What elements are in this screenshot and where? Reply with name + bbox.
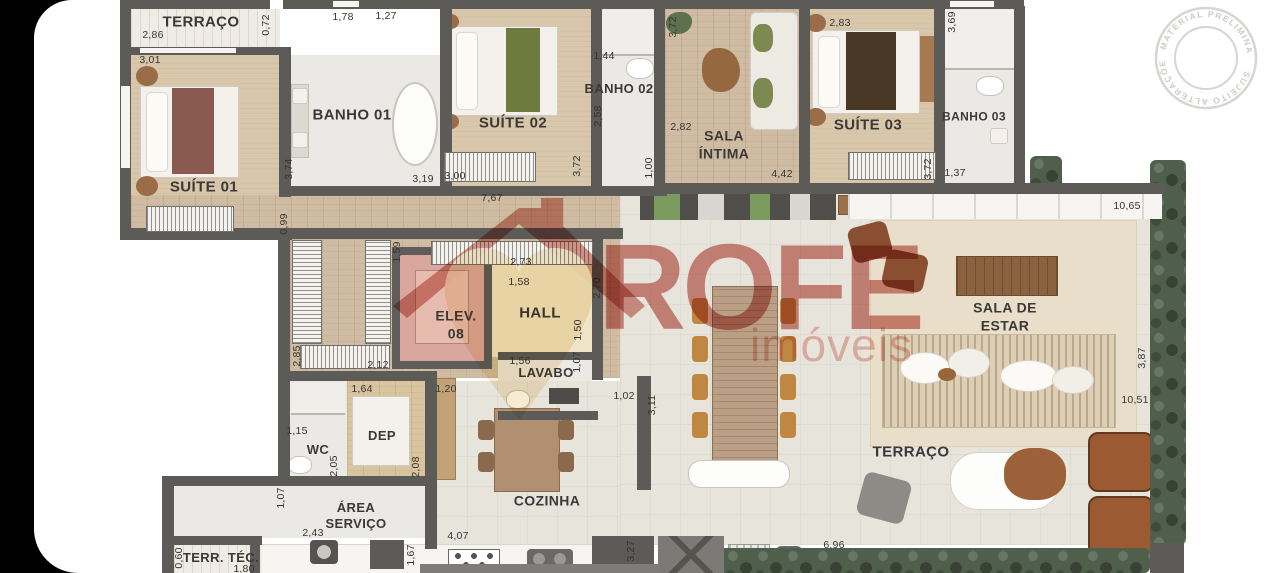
dim-label-20: 0,99 <box>278 213 290 234</box>
dim-label-37: 2,43 <box>302 527 323 539</box>
dim-label-7: 3,69 <box>946 11 958 32</box>
dim-label-43: 4,07 <box>447 530 468 542</box>
dim-label-30: 2,12 <box>367 359 388 371</box>
dim-label-1: 3,01 <box>139 54 160 66</box>
dim-label-10: 3,00 <box>444 170 465 182</box>
dim-label-42: 1,67 <box>405 544 417 565</box>
dim-label-12: 2,82 <box>670 121 691 133</box>
dim-label-46: 0,60 <box>173 547 185 568</box>
dim-label-41: 10,51 <box>1121 394 1148 406</box>
dim-label-15: 3,72 <box>922 158 934 179</box>
dim-label-29: 2,85 <box>291 345 303 366</box>
dim-label-17: 1,00 <box>643 157 655 178</box>
dim-label-45: 6,96 <box>823 539 844 551</box>
dim-label-0: 2,86 <box>142 29 163 41</box>
stamp-outer-ring <box>1156 8 1256 108</box>
dim-label-40: 3,87 <box>1136 347 1148 368</box>
floor-plan-page: TERRAÇOSUÍTE 01BANHO 01SUÍTE 02BANHO 02S… <box>0 0 1280 573</box>
logo-tagline: imóveis <box>750 318 913 372</box>
dim-label-31: 1,64 <box>351 383 372 395</box>
dim-label-16: 1,37 <box>944 167 965 179</box>
dim-label-33: 1,15 <box>286 425 307 437</box>
stamp-inner-ring <box>1175 27 1237 89</box>
dim-label-14: 3,72 <box>571 155 583 176</box>
dim-label-21: 10,65 <box>1113 200 1140 212</box>
dim-label-18: 4,42 <box>771 168 792 180</box>
dim-label-8: 3,74 <box>283 158 295 179</box>
dim-label-47: 1,80 <box>233 563 254 573</box>
dim-label-3: 1,78 <box>332 11 353 23</box>
dim-label-9: 3,19 <box>412 173 433 185</box>
dim-label-36: 1,07 <box>275 487 287 508</box>
dim-label-44: 3,27 <box>625 540 637 561</box>
dim-label-13: 3,72 <box>667 16 679 37</box>
dim-label-5: 1,44 <box>593 50 614 62</box>
dim-label-34: 2,05 <box>328 455 340 476</box>
dim-label-6: 2,83 <box>829 17 850 29</box>
dim-label-4: 1,27 <box>375 10 396 22</box>
dim-label-11: 2,58 <box>592 105 604 126</box>
logo-heart-shape <box>445 248 593 420</box>
dim-label-2: 0,72 <box>260 14 272 35</box>
preliminary-stamp: MATERIAL PRELIMINAR SUJEITO ALTERAÇÕES <box>1150 2 1262 114</box>
